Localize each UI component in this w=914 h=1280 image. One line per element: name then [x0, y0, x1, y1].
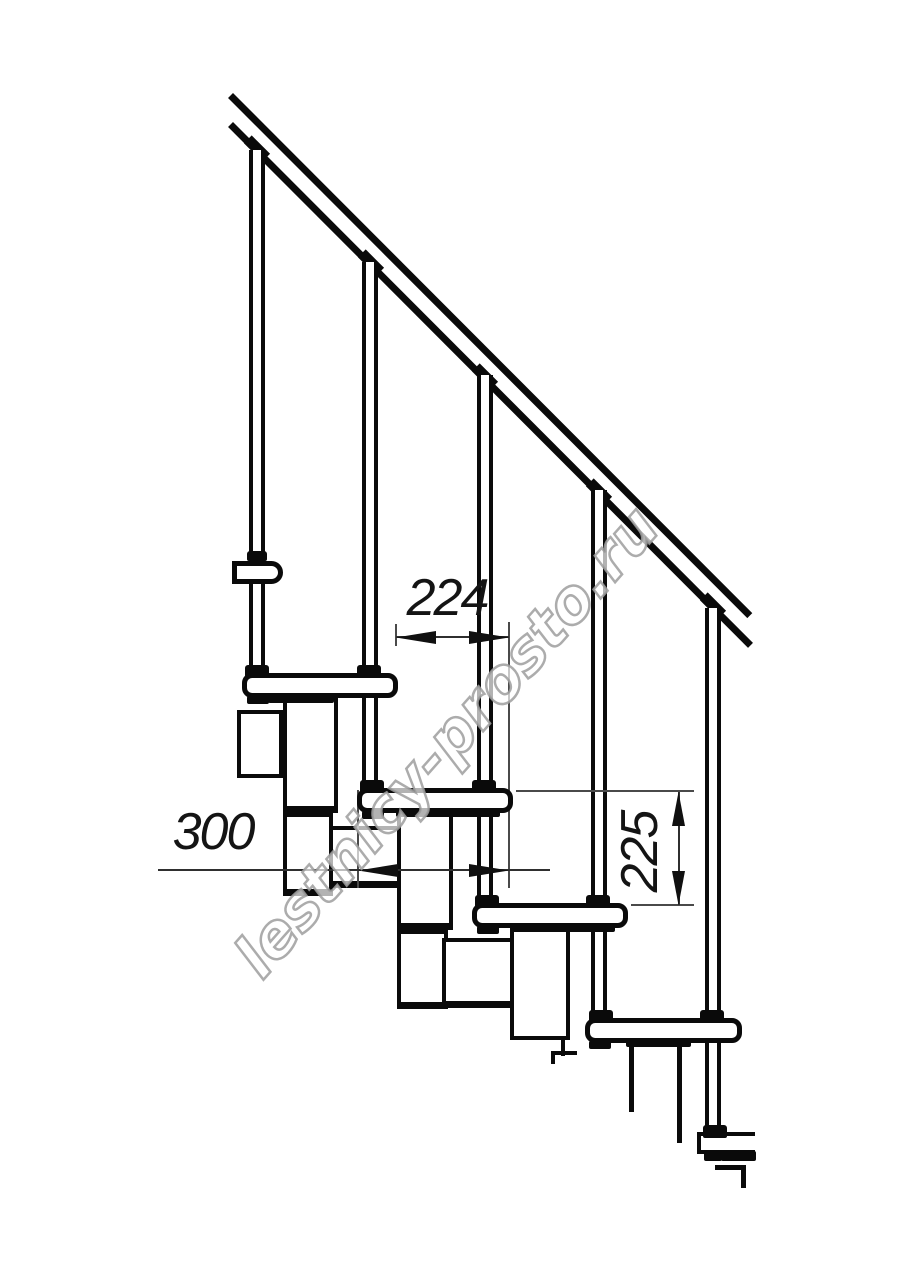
tread-mount	[589, 1041, 611, 1049]
cut-line	[715, 1165, 744, 1170]
tread-shadow-bar	[626, 1041, 691, 1047]
dimension-label-step-rise: 225	[614, 807, 666, 897]
baluster-foot	[589, 1010, 613, 1023]
tread-shadow-bar	[721, 1151, 756, 1161]
arrowhead-left	[396, 631, 436, 644]
arrowhead-up	[672, 792, 685, 826]
dimension-label-step-run: 224	[402, 572, 492, 624]
extension-line-224-left	[395, 624, 397, 646]
module-tube	[397, 930, 448, 1009]
rail-end-bracket	[232, 561, 283, 584]
extension-line-225-top	[516, 790, 694, 792]
upper-support-rect	[237, 710, 283, 778]
arrowhead-down	[672, 871, 685, 905]
baluster-foot	[245, 665, 269, 678]
baluster-collar	[472, 780, 496, 793]
tread-mount	[477, 926, 499, 934]
tread-shadow-bar	[268, 696, 334, 703]
baluster-foot	[703, 1125, 727, 1138]
tread-shadow-bar	[511, 926, 615, 932]
baluster-2	[362, 262, 378, 787]
baluster-5	[705, 608, 721, 1132]
baluster-1	[249, 150, 265, 672]
baluster-collar	[700, 1010, 724, 1023]
baluster-collar	[357, 665, 381, 678]
staircase-drawing: 224 300 225 lestnicy-prosto.ru	[0, 0, 914, 1280]
baluster-foot	[475, 895, 499, 908]
extension-line-225-bottom	[631, 904, 694, 906]
module-tube	[283, 697, 338, 813]
module-body	[442, 938, 518, 1008]
tread-mount	[704, 1151, 722, 1161]
module-tube-cut-line	[677, 1047, 682, 1143]
module-tube-cut-line	[629, 1047, 634, 1112]
baluster-ring	[247, 551, 267, 561]
baluster-collar	[586, 895, 610, 908]
module-tube-cut	[510, 927, 570, 1040]
cut-line	[741, 1165, 746, 1188]
break-mark	[551, 1051, 555, 1064]
dimension-label-tread-depth: 300	[168, 806, 258, 858]
tread-mount	[247, 696, 269, 704]
